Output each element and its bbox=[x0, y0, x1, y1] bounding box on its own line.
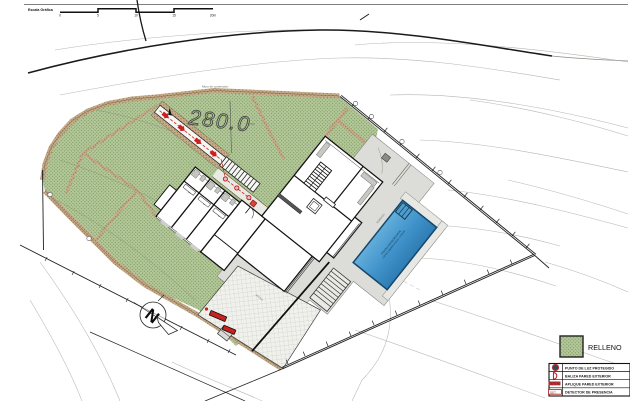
svg-text:Muro de contención: Muro de contención bbox=[202, 85, 229, 89]
svg-text:Escala Gráfica: Escala Gráfica bbox=[28, 8, 54, 12]
svg-text:20m: 20m bbox=[210, 14, 217, 18]
svg-text:PUNTO DE LUZ PROTEGIDO: PUNTO DE LUZ PROTEGIDO bbox=[565, 366, 614, 370]
svg-text:10: 10 bbox=[134, 14, 138, 18]
svg-text:BALIZA PARED EXTERIOR: BALIZA PARED EXTERIOR bbox=[565, 374, 611, 378]
svg-text:APLIQUE PARED EXTERIOR: APLIQUE PARED EXTERIOR bbox=[565, 383, 614, 387]
svg-text:15: 15 bbox=[172, 14, 176, 18]
svg-text:DETECTOR DE PRESENCIA: DETECTOR DE PRESENCIA bbox=[565, 391, 613, 395]
svg-text:DET: DET bbox=[550, 390, 556, 394]
svg-text:RELLENO: RELLENO bbox=[588, 343, 622, 352]
svg-text:5: 5 bbox=[97, 14, 99, 18]
svg-text:0: 0 bbox=[59, 14, 61, 18]
